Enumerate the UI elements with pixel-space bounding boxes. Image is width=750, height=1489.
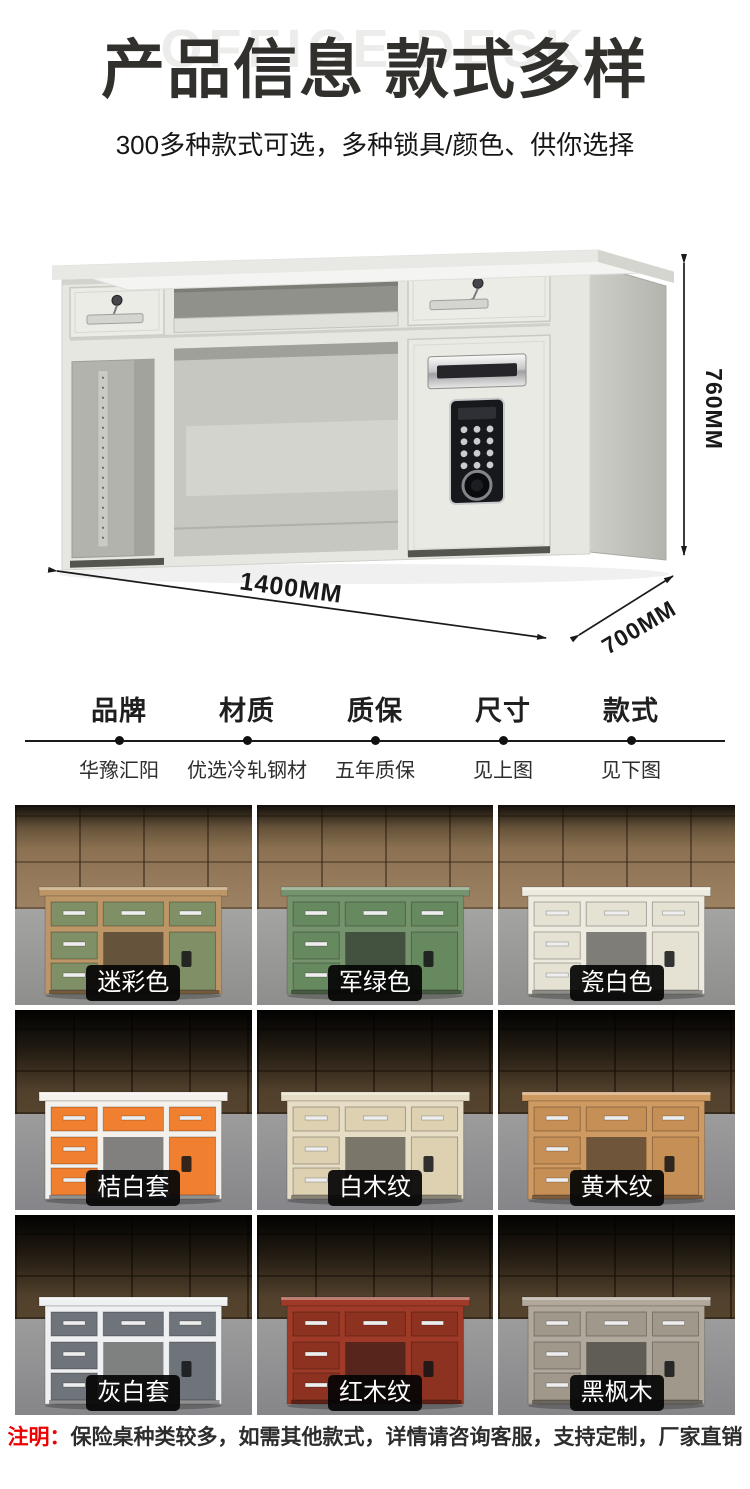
spec-header: 尺寸 (439, 688, 567, 734)
page-subtitle: 300多种款式可选，多种锁具/颜色、供你选择 (0, 128, 750, 162)
style-card: 桔白套 (15, 1010, 252, 1210)
spec-dot (115, 736, 124, 745)
style-label: 红木纹 (328, 1375, 422, 1411)
style-label: 迷彩色 (86, 965, 180, 1001)
style-card: 黑枫木 (498, 1215, 735, 1415)
spec-value: 优选冷轧钢材 (183, 759, 311, 783)
spec-value: 见上图 (439, 759, 567, 783)
style-label: 灰白套 (86, 1375, 180, 1411)
spec-warranty: 质保 五年质保 (311, 688, 439, 783)
spec-header: 款式 (567, 688, 695, 734)
spec-dot (499, 736, 508, 745)
style-card: 白木纹 (257, 1010, 494, 1210)
style-label: 军绿色 (328, 965, 422, 1001)
spec-strip: 品牌 华豫汇阳 材质 优选冷轧钢材 质保 五年质保 尺寸 见上图 款式 见下图 (25, 688, 725, 783)
spec-value: 五年质保 (311, 759, 439, 783)
drawer-handle (87, 314, 143, 325)
style-card: 军绿色 (257, 805, 494, 1005)
spec-dot (371, 736, 380, 745)
footer-note: 注明：保险桌种类较多，如需其他款式，详情请咨询客服，支持定制，厂家直销 (0, 1424, 750, 1452)
spec-material: 材质 优选冷轧钢材 (183, 688, 311, 783)
lock-icon (473, 278, 483, 288)
style-label: 白木纹 (328, 1170, 422, 1206)
style-label: 黄木纹 (570, 1170, 664, 1206)
lock-icon (112, 295, 122, 305)
note-label: 注明： (8, 1426, 71, 1449)
spec-dot (243, 736, 252, 745)
spec-style: 款式 见下图 (567, 688, 695, 783)
style-label: 瓷白色 (570, 965, 664, 1001)
height-dimension-label: 760MM (701, 368, 727, 450)
spec-dot (627, 736, 636, 745)
style-card: 迷彩色 (15, 805, 252, 1005)
spec-header: 材质 (183, 688, 311, 734)
style-card: 瓷白色 (498, 805, 735, 1005)
note-text: 保险桌种类较多，如需其他款式，详情请咨询客服，支持定制，厂家直销 (71, 1426, 743, 1449)
style-card: 红木纹 (257, 1215, 494, 1415)
spec-value: 见下图 (567, 759, 695, 783)
style-label: 黑枫木 (570, 1375, 664, 1411)
spec-header: 质保 (311, 688, 439, 734)
style-grid: 迷彩色 军绿色 (15, 805, 735, 1415)
drawer-handle (430, 299, 488, 310)
page-title: 产品信息 款式多样 (0, 36, 750, 104)
product-figure: 760MM 1400MM 700MM (0, 205, 750, 665)
spec-size: 尺寸 见上图 (439, 688, 567, 783)
style-card: 黄木纹 (498, 1010, 735, 1210)
desk-side-panel (590, 264, 666, 560)
spec-header: 品牌 (55, 688, 183, 734)
desk-illustration: 760MM 1400MM 700MM (0, 205, 750, 665)
desk-front (62, 264, 590, 570)
depth-dimension-label: 700MM (597, 595, 680, 659)
style-label: 桔白套 (86, 1170, 180, 1206)
spec-brand: 品牌 华豫汇阳 (55, 688, 183, 783)
style-card: 灰白套 (15, 1215, 252, 1415)
spec-value: 华豫汇阳 (55, 759, 183, 783)
